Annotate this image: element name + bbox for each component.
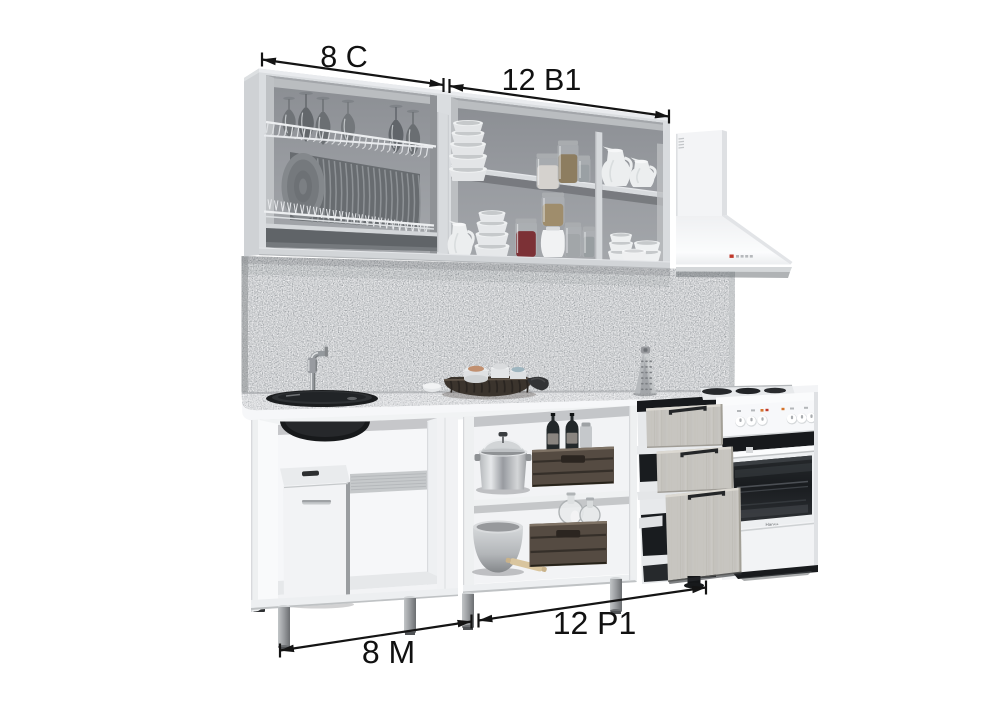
svg-text:12 Р1: 12 Р1	[553, 605, 637, 641]
svg-text:8 М: 8 М	[362, 634, 415, 670]
svg-text:8 С: 8 С	[320, 40, 367, 74]
svg-text:12 В1: 12 В1	[502, 63, 582, 97]
